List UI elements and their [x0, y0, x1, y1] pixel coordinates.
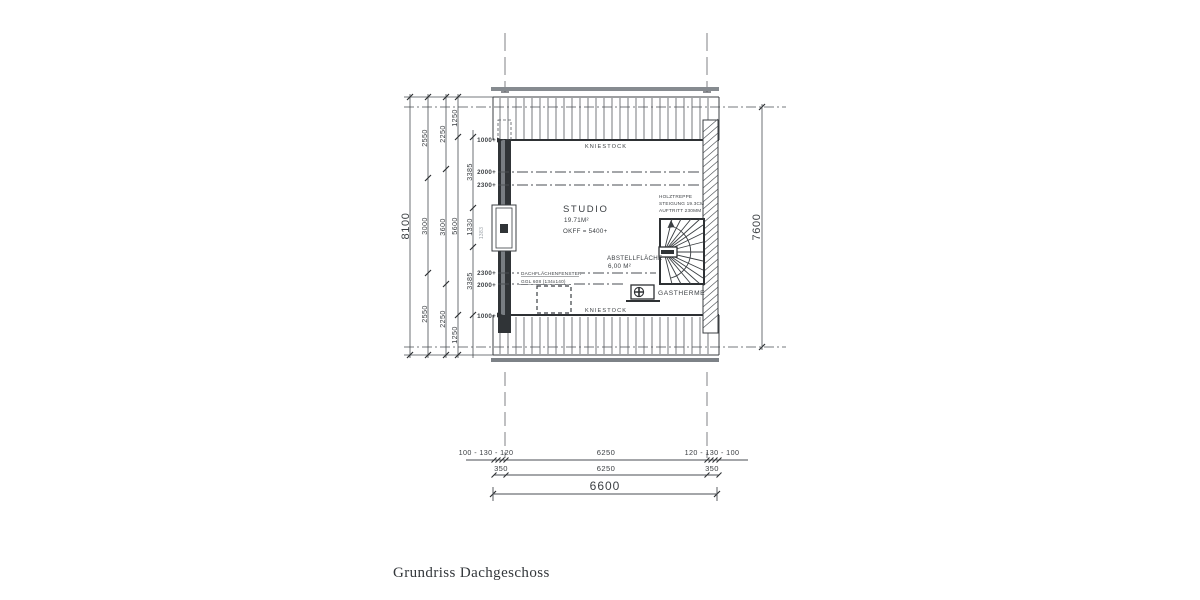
dim-row2-center: 6250 [597, 464, 616, 473]
dim-row1-right: 120 - 130 - 100 [685, 448, 740, 457]
height-mark-bottom-2: 2000+ [477, 282, 496, 289]
dim-right-total: 7600 [751, 214, 763, 241]
height-mark-top-1: 1000+ [477, 137, 496, 144]
stair-note-line3: AUFTRITT 230MM [659, 208, 701, 213]
stair-note-line1: HOLZTREPPE [659, 194, 692, 199]
room-name: STUDIO [563, 204, 609, 215]
dim-row2-right: 350 [705, 464, 719, 473]
roof-window-note-line2: GGL 608 (134x140) [521, 279, 566, 284]
dimension-right: 7600 [751, 104, 763, 350]
gas-meter-icon [634, 287, 643, 296]
dim-chain-b-2: 3600 [438, 218, 447, 236]
dimension-bottom: 100 - 130 - 120 6250 120 - 130 - 100 350… [459, 448, 748, 501]
dim-row1-left: 100 - 130 - 120 [459, 448, 514, 457]
dim-chain-c-1: 1250 [450, 109, 459, 127]
eave-edge-top [491, 87, 719, 91]
storage-note-line1: ABSTELLFLÄCHE [607, 255, 662, 262]
room-floor-level: OKFF = 5400+ [563, 228, 608, 235]
dim-chain-a-3: 2550 [420, 305, 429, 323]
floor-plan-sheet: DACHFLÄCHENFENSTER GGL 608 (134x140) GAS… [0, 0, 1200, 600]
room-area: 19.71M² [564, 217, 589, 224]
dim-chain-c-3: 1250 [450, 326, 459, 344]
gas-heater: GASTHERME [626, 285, 705, 301]
eave-edge-bottom [491, 358, 719, 362]
floor-plan-drawing: DACHFLÄCHENFENSTER GGL 608 (134x140) GAS… [0, 0, 1200, 600]
gable-wall-left [492, 120, 516, 333]
stair-note-line2: STEIGUNG 19.3CM [659, 201, 704, 206]
kniestock-label-bottom: KNIESTOCK [585, 308, 627, 314]
kniestock-label-top: KNIESTOCK [585, 144, 627, 150]
dim-row2-left: 350 [494, 464, 508, 473]
roof-window: DACHFLÄCHENFENSTER GGL 608 (134x140) [519, 269, 582, 313]
stair [659, 219, 704, 284]
dim-chain-d-2: 1330 [465, 218, 474, 236]
dim-left-total: 8100 [400, 213, 412, 240]
roof-window-note-line1: DACHFLÄCHENFENSTER [521, 270, 582, 276]
dim-chain-a-2: 3000 [420, 217, 429, 235]
height-mark-bottom-1: 2300+ [477, 270, 496, 277]
dim-chain-a-1: 2550 [420, 129, 429, 147]
dim-chain-d-1: 3385 [465, 163, 474, 181]
storage-note-line2: 6,00 M² [608, 263, 631, 270]
dim-row3-total: 6600 [590, 479, 621, 493]
dim-row1-center: 6250 [597, 448, 616, 457]
gable-window [492, 205, 516, 251]
gable-wall-right [703, 119, 718, 333]
height-mark-top-3: 2300+ [477, 182, 496, 189]
heater-label: GASTHERME [658, 290, 705, 297]
dim-chain-b-3: 2250 [438, 310, 447, 328]
drawing-title: Grundriss Dachgeschoss [393, 565, 550, 582]
dim-chain-d-3: 3385 [465, 272, 474, 290]
dim-chain-b-1: 2250 [438, 125, 447, 143]
dim-chain-c-2: 5600 [450, 217, 459, 235]
height-mark-bottom-3: 1000+ [477, 313, 496, 320]
dim-chain-d-alt: 1383 [479, 227, 485, 239]
height-mark-top-2: 2000+ [477, 169, 496, 176]
